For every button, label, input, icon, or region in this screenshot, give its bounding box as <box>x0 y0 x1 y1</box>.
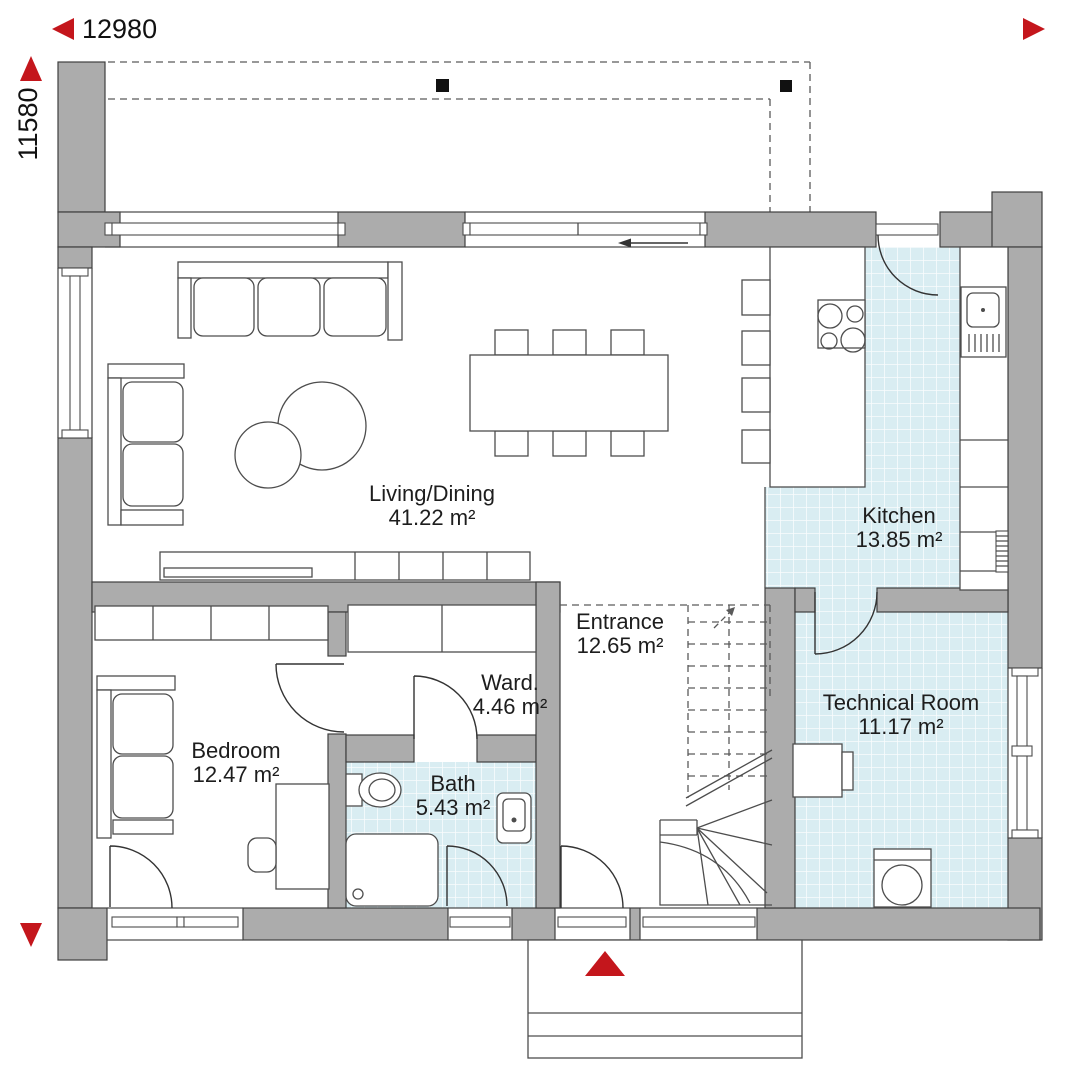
coffee-tables <box>235 382 366 488</box>
desk <box>276 784 329 889</box>
room-area: 41.22 m² <box>369 506 495 530</box>
dim-arrow-up-icon <box>20 56 42 81</box>
dining-chair <box>611 330 644 355</box>
room-name: Kitchen <box>856 504 943 528</box>
wardrobe-bedroom <box>95 606 328 640</box>
room-name: Entrance <box>576 610 664 634</box>
dimension-height-value: 11580 <box>13 87 43 160</box>
window-south-bedroom <box>107 908 243 940</box>
kitchen-island <box>770 247 865 487</box>
dishwasher-icon <box>996 531 1008 572</box>
dining-chair <box>553 330 586 355</box>
dining-table-set <box>470 330 668 456</box>
dining-table <box>470 355 668 431</box>
terrace-outline <box>108 62 810 212</box>
washing-machine-icon <box>874 849 931 907</box>
door-bedroom <box>276 664 344 732</box>
stairs <box>660 605 772 905</box>
room-area: 12.65 m² <box>576 634 664 658</box>
kitchen-sink-icon <box>961 287 1006 357</box>
kitchen-counter <box>960 247 1008 590</box>
floor-plan: 12980 11580 Living/Dining 41.22 m² Kitch… <box>0 0 1065 1080</box>
desk-chair <box>248 838 276 872</box>
door-ward <box>414 676 477 739</box>
room-name: Living/Dining <box>369 482 495 506</box>
sliding-door-north <box>463 212 707 248</box>
toilet-icon <box>346 773 401 807</box>
roof-post-icon <box>780 80 792 92</box>
boiler-icon <box>793 744 853 797</box>
room-name: Ward. <box>473 671 548 695</box>
dim-arrow-down-icon <box>20 923 42 947</box>
kitchen-door-threshold-floor <box>815 588 877 612</box>
closet-ward <box>348 605 536 652</box>
dimension-height-label: 11580 <box>13 79 43 169</box>
door-south-bath <box>448 908 512 940</box>
dining-chair <box>553 431 586 456</box>
door-main-entrance <box>561 846 623 908</box>
room-area: 12.47 m² <box>191 763 280 787</box>
room-name: Technical Room <box>823 691 980 715</box>
room-label-entrance: Entrance 12.65 m² <box>576 610 664 658</box>
dimension-width-label: 12980 <box>82 14 157 45</box>
dining-chair <box>495 330 528 355</box>
roof-post-icon <box>436 79 449 92</box>
room-label-bedroom: Bedroom 12.47 m² <box>191 739 280 787</box>
room-name: Bedroom <box>191 739 280 763</box>
room-area: 4.46 m² <box>473 695 548 719</box>
sideboard <box>160 552 530 580</box>
room-label-kitchen: Kitchen 13.85 m² <box>856 504 943 552</box>
window-south-entrance <box>640 908 757 940</box>
sofa-large <box>178 262 402 340</box>
stairs-upper-flight <box>688 605 770 798</box>
room-name: Bath <box>416 772 491 796</box>
room-label-technical: Technical Room 11.17 m² <box>823 691 980 739</box>
room-label-bath: Bath 5.43 m² <box>416 772 491 820</box>
main-entrance-opening <box>555 908 630 940</box>
stairs-up-arrow-icon <box>714 607 735 628</box>
room-area: 5.43 m² <box>416 796 491 820</box>
dimension-width-value: 12980 <box>82 14 157 44</box>
sliding-door-arrow-icon <box>618 239 688 248</box>
stairs-winder <box>660 800 772 905</box>
shower-icon <box>346 834 438 906</box>
window-east-technical <box>1008 668 1042 838</box>
washbasin-icon <box>497 793 531 843</box>
room-label-living: Living/Dining 41.22 m² <box>369 482 495 530</box>
bar-stools <box>742 280 770 463</box>
window-north-living <box>105 212 345 247</box>
room-area: 11.17 m² <box>823 715 980 739</box>
dining-chair <box>611 431 644 456</box>
cooktop-icon <box>818 300 865 352</box>
entry-porch <box>528 940 802 1058</box>
dining-chair <box>495 431 528 456</box>
dim-arrow-right-icon <box>1023 18 1045 40</box>
daybed <box>97 676 175 838</box>
room-area: 13.85 m² <box>856 528 943 552</box>
dim-arrow-left-icon <box>52 18 74 40</box>
room-label-ward: Ward. 4.46 m² <box>473 671 548 719</box>
door-bedroom-terrace <box>110 846 172 908</box>
sofa-small <box>108 364 184 525</box>
window-west-living <box>58 268 92 438</box>
